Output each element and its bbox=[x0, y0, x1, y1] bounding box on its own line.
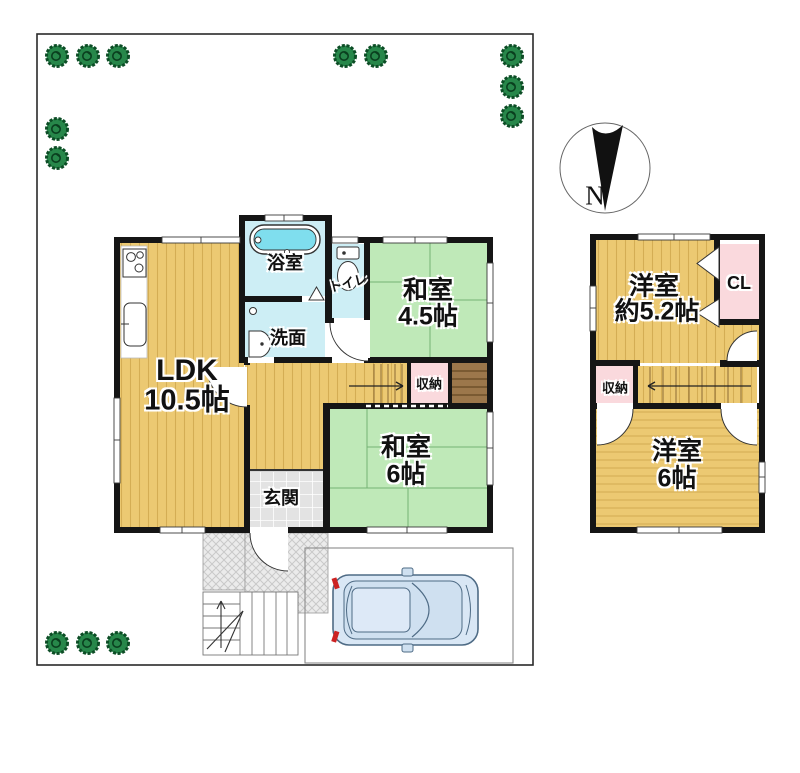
floor-plan-canvas: LDK 10.5帖 浴室 トイレ 洗面 和室 4.5帖 収納 和室 6帖 玄関 … bbox=[0, 0, 800, 773]
kitchen-sink-icon bbox=[121, 303, 146, 346]
label-bathroom: 浴室 bbox=[267, 254, 303, 272]
car-icon bbox=[331, 568, 478, 652]
tree-icon bbox=[47, 46, 68, 67]
kitchen-counter bbox=[121, 246, 147, 358]
tree-icon bbox=[78, 46, 99, 67]
label-entrance: 玄関 bbox=[263, 489, 299, 507]
staircase-2f bbox=[638, 366, 757, 403]
tree-icon bbox=[47, 148, 68, 169]
label-washitsu6-area: 6帖 bbox=[387, 463, 426, 488]
label-youshitsu52-name: 洋室 bbox=[629, 275, 679, 300]
tree-icon bbox=[502, 46, 523, 67]
compass-icon bbox=[560, 123, 650, 213]
label-storage-1f: 収納 bbox=[416, 378, 442, 391]
tree-icon bbox=[335, 46, 356, 67]
label-washitsu45-name: 和室 bbox=[403, 279, 453, 304]
label-ldk-name: LDK bbox=[156, 356, 218, 386]
oshiire-closet bbox=[452, 363, 487, 403]
tree-icon bbox=[366, 46, 387, 67]
label-youshitsu6-area: 6帖 bbox=[658, 467, 697, 492]
label-washitsu6-name: 和室 bbox=[381, 436, 431, 461]
tree-icon bbox=[47, 633, 68, 654]
label-ldk-area: 10.5帖 bbox=[144, 387, 229, 416]
exterior-stairs bbox=[203, 592, 298, 655]
label-closet: CL bbox=[727, 274, 751, 292]
label-storage-2f: 収納 bbox=[602, 382, 628, 395]
tree-icon bbox=[78, 633, 99, 654]
tree-icon bbox=[108, 633, 129, 654]
tree-icon bbox=[108, 46, 129, 67]
stove-icon bbox=[123, 249, 146, 277]
label-youshitsu52-area: 約5.2帖 bbox=[615, 300, 700, 325]
label-youshitsu6-name: 洋室 bbox=[652, 440, 702, 465]
bathtub-icon bbox=[250, 225, 320, 255]
tree-icon bbox=[502, 77, 523, 98]
label-washroom: 洗面 bbox=[270, 329, 306, 347]
floor-plan-drawing bbox=[0, 0, 800, 773]
label-washitsu45-area: 4.5帖 bbox=[398, 305, 458, 330]
tree-icon bbox=[47, 119, 68, 140]
label-north: N bbox=[585, 183, 605, 210]
tree-icon bbox=[502, 106, 523, 127]
